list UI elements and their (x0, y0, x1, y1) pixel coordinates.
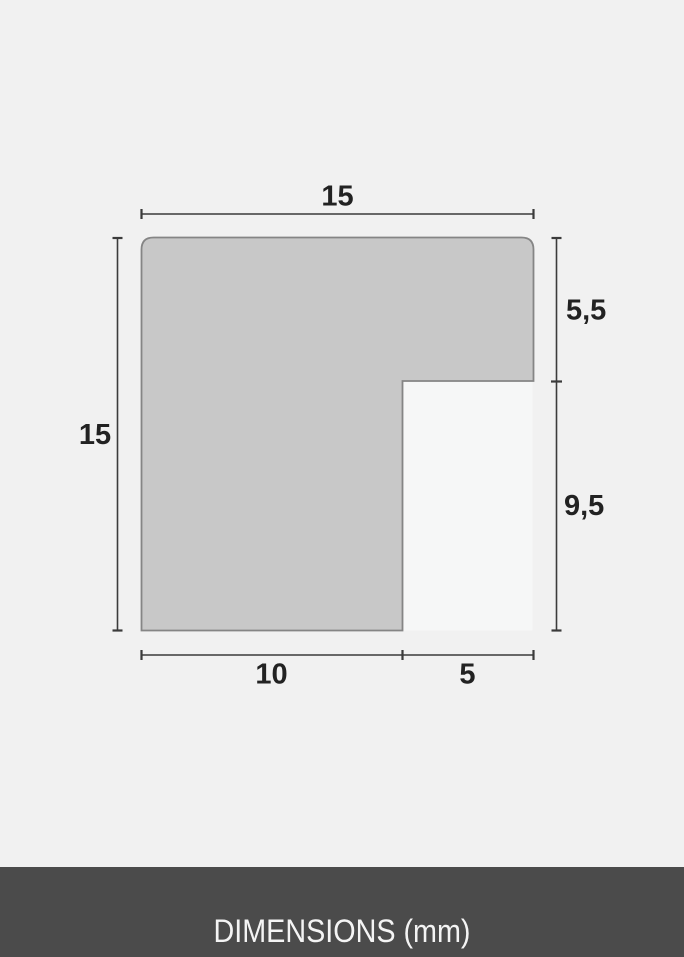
svg-text:DIMENSIONS (mm): DIMENSIONS (mm) (214, 913, 471, 949)
svg-text:5,5: 5,5 (566, 295, 606, 327)
svg-text:15: 15 (79, 419, 111, 451)
svg-text:10: 10 (255, 659, 287, 691)
svg-text:5: 5 (459, 659, 475, 691)
svg-text:15: 15 (321, 181, 353, 213)
svg-text:9,5: 9,5 (564, 490, 604, 522)
